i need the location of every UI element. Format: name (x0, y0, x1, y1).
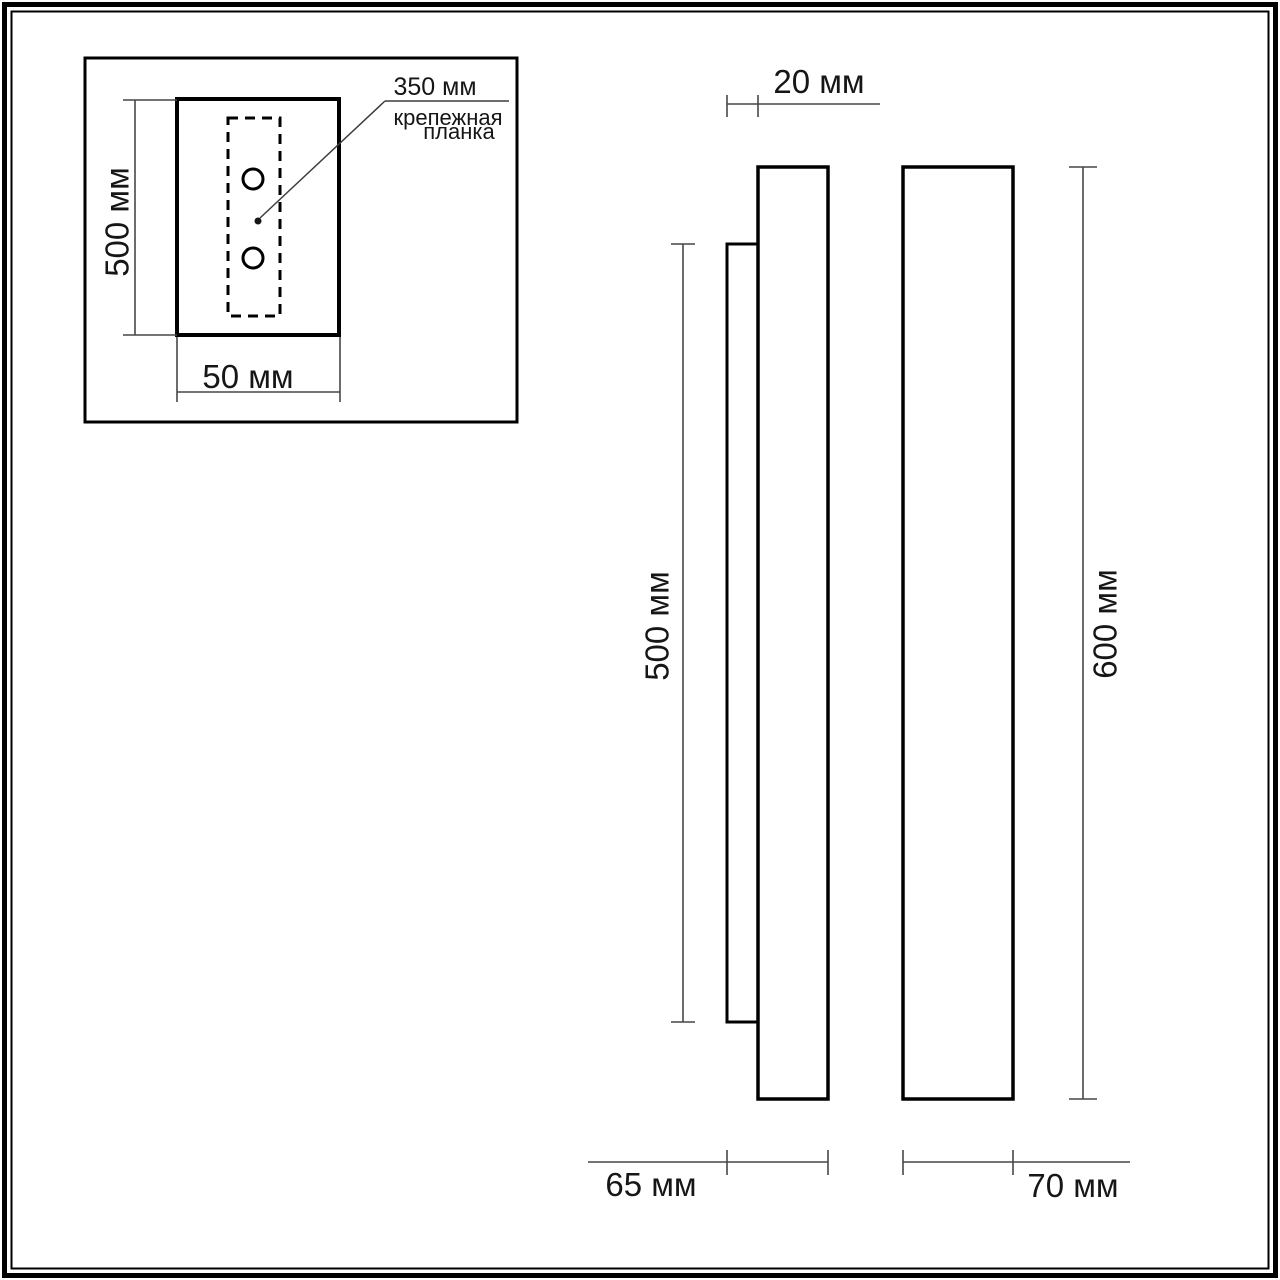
plate-depth-dimension: 20 мм (727, 63, 880, 117)
inset-width-dimension: 50 мм (177, 337, 340, 402)
total-depth-label: 65 мм (605, 1166, 696, 1203)
fixture-front-profile (903, 167, 1013, 1099)
front-view (903, 167, 1013, 1099)
bracket-caption-line2: планка (423, 119, 495, 144)
fixture-side-profile (758, 167, 828, 1099)
technical-drawing-canvas: 350 мм крепежная планка 500 мм 50 мм (0, 0, 1280, 1280)
leader-dot (255, 218, 262, 225)
side-view (727, 167, 828, 1099)
inset-height-label: 500 мм (99, 167, 136, 277)
drawing-svg: 350 мм крепежная планка 500 мм 50 мм (0, 0, 1280, 1280)
fixture-height-label: 600 мм (1087, 569, 1124, 679)
inset-height-dimension: 500 мм (99, 100, 178, 335)
plate-depth-label: 20 мм (773, 63, 864, 100)
inset-detail-panel: 350 мм крепежная планка 500 мм 50 мм (85, 58, 517, 422)
screw-hole-top (243, 169, 263, 189)
plate-height-label: 500 мм (639, 571, 676, 681)
fixture-height-dimension: 600 мм (1069, 167, 1124, 1099)
bracket-length-label: 350 мм (393, 73, 476, 101)
front-width-label: 70 мм (1027, 1167, 1118, 1204)
inset-width-label: 50 мм (202, 358, 293, 395)
screw-hole-bottom (243, 248, 263, 268)
front-width-dimension: 70 мм (903, 1150, 1130, 1204)
plate-height-dimension: 500 мм (639, 244, 696, 1022)
total-depth-dimension: 65 мм (588, 1150, 828, 1203)
mounting-plate-profile (727, 244, 758, 1022)
fixture-front-outline (177, 99, 339, 335)
